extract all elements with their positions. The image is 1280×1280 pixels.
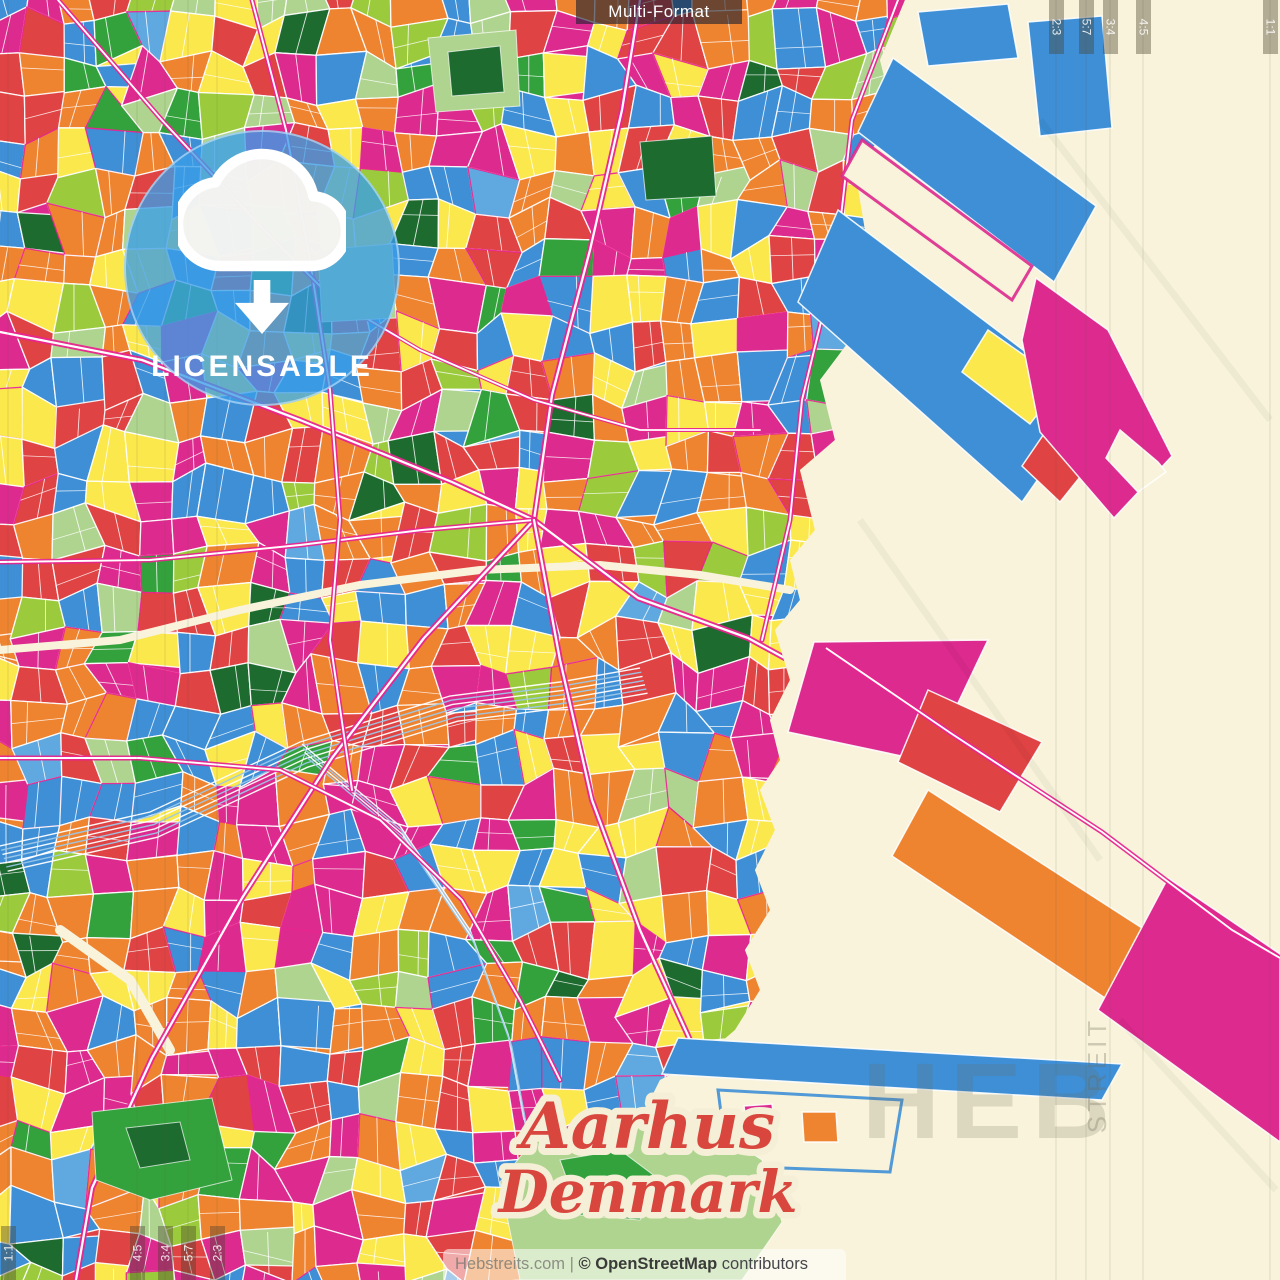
cloud-download-icon xyxy=(178,146,346,274)
crop-ratio-tab-4-5: 4:5 xyxy=(1136,0,1151,54)
attribution-separator: | xyxy=(565,1255,578,1274)
attribution-site: Hebstreits.com xyxy=(455,1255,565,1274)
crop-ratio-label: 1:1 xyxy=(1263,19,1277,36)
attribution-osm: © OpenStreetMap xyxy=(579,1255,718,1274)
crop-ratio-tab-3-4: 3:4 xyxy=(1103,0,1118,54)
licensable-badge: LICENSABLE xyxy=(124,130,400,406)
attribution-contributors: contributors xyxy=(717,1255,808,1274)
crop-ratio-label: 2:3 xyxy=(210,1245,224,1262)
map-poster: HEBSTREITAarhusDenmark Multi-Format 2:35… xyxy=(0,0,1280,1280)
crop-ratio-tab-5-7: 5:7 xyxy=(181,1226,196,1280)
crop-ratio-tab-3-4: 3:4 xyxy=(158,1226,173,1280)
crop-ratio-label: 5:7 xyxy=(1079,19,1093,36)
city-name: Aarhus xyxy=(516,1089,775,1164)
crop-ratio-tab-1-1: 1:1 xyxy=(1,1226,16,1280)
crop-ratio-tab-4-5: 4:5 xyxy=(130,1226,145,1280)
crop-ratio-tab-2-3: 2:3 xyxy=(1049,0,1064,54)
crop-ratio-label: 1:1 xyxy=(1,1245,15,1262)
download-arrow-icon xyxy=(234,280,290,334)
crop-ratio-tab-2-3: 2:3 xyxy=(210,1226,225,1280)
crop-ratio-label: 4:5 xyxy=(130,1245,144,1262)
crop-ratio-label: 5:7 xyxy=(181,1245,195,1262)
attribution-bar: Hebstreits.com | © OpenStreetMap contrib… xyxy=(443,1249,846,1280)
crop-ratio-tab-5-7: 5:7 xyxy=(1079,0,1094,54)
crop-ratio-label: 4:5 xyxy=(1136,19,1150,36)
watermark-vertical: STREIT xyxy=(1082,1017,1112,1133)
crop-ratio-label: 3:4 xyxy=(1103,19,1117,36)
crop-ratio-label: 3:4 xyxy=(158,1245,172,1262)
crop-ratio-tab-1-1: 1:1 xyxy=(1263,0,1278,54)
format-tab-label: Multi-Format xyxy=(608,2,709,21)
crop-ratio-label: 2:3 xyxy=(1049,19,1063,36)
format-tab: Multi-Format xyxy=(576,0,742,24)
badge-label: LICENSABLE xyxy=(151,350,373,384)
country-name: Denmark xyxy=(496,1158,797,1226)
